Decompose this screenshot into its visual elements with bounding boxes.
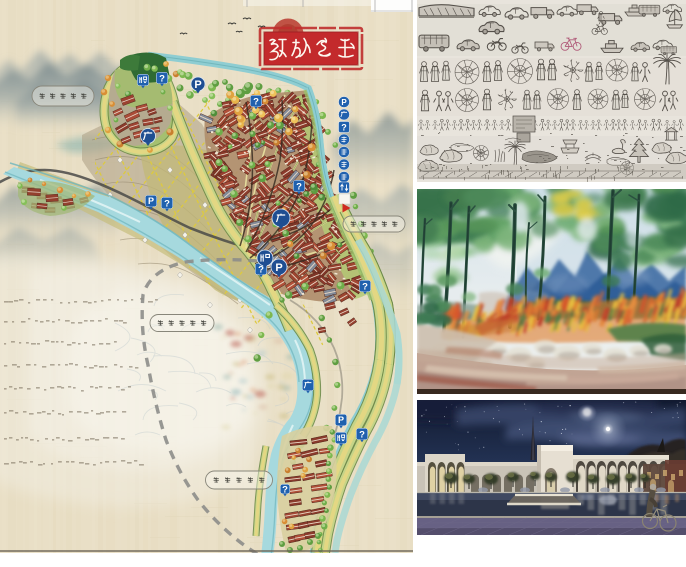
svg-text:?: ? (159, 73, 165, 84)
svg-text:?: ? (296, 181, 302, 192)
svg-text:P: P (194, 79, 201, 91)
svg-text:P: P (148, 196, 154, 206)
svg-text:?: ? (164, 198, 170, 209)
svg-text:?: ? (253, 96, 259, 107)
svg-text:?: ? (359, 429, 365, 440)
svg-text:P: P (338, 415, 344, 425)
svg-text:P: P (341, 98, 347, 107)
svg-text:P: P (275, 262, 282, 274)
svg-text:?: ? (362, 281, 368, 292)
svg-text:?: ? (341, 122, 347, 132)
